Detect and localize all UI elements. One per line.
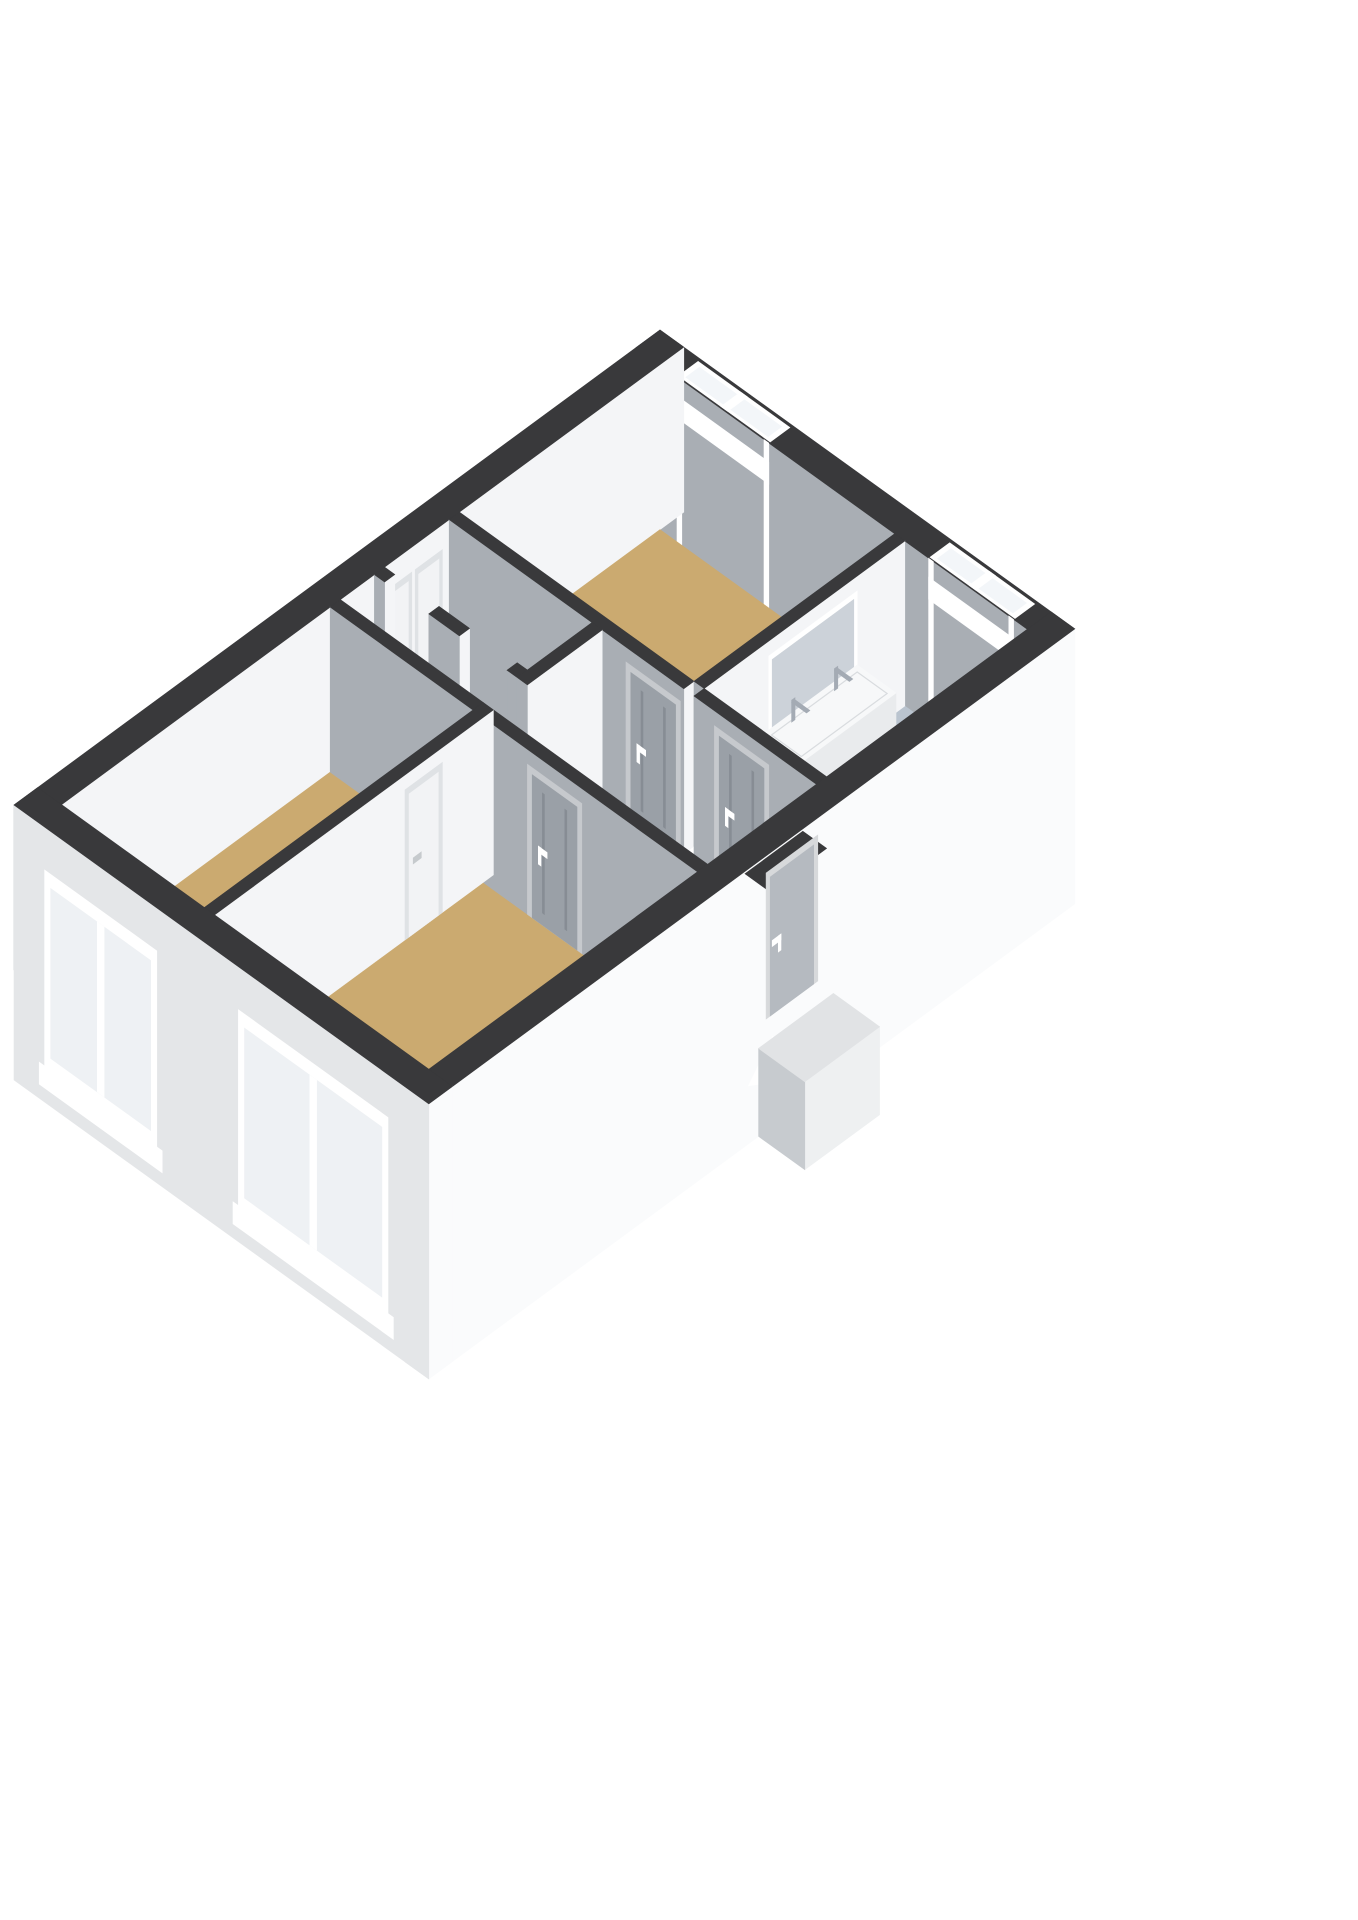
window-bedroom-top-jamb	[764, 440, 769, 608]
door-bedroom-top-handle	[637, 744, 640, 764]
exterior-wall-sw-side-lit	[429, 1086, 453, 1379]
wall-bedroom-top-hall-side-lit	[684, 681, 694, 854]
door-bathroom-handle	[725, 808, 728, 828]
door-entrance-handle	[778, 934, 781, 952]
window-bedroom-left-mullion	[97, 922, 104, 1097]
floor-plan-3d-render	[0, 0, 1358, 1920]
door-living-room-seam	[565, 809, 567, 931]
door-living-room-handle	[538, 846, 541, 866]
door-bedroom-left-panel	[409, 772, 438, 937]
door-bedroom-top-seam	[663, 707, 665, 829]
window-living-room-mullion	[310, 1075, 317, 1250]
floor-plan-canvas	[0, 0, 1358, 1920]
